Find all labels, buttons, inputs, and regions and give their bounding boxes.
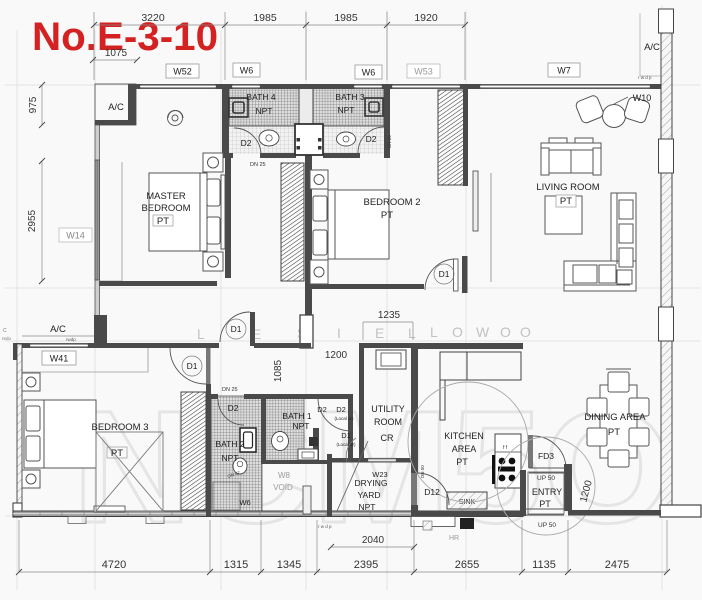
svg-text:r w d p: r w d p bbox=[318, 524, 332, 529]
svg-text:DINING AREA: DINING AREA bbox=[584, 412, 646, 423]
svg-text:DN 50: DN 50 bbox=[420, 465, 425, 478]
svg-text:4720: 4720 bbox=[102, 559, 126, 571]
svg-text:2040: 2040 bbox=[362, 535, 385, 546]
svg-text:NPT: NPT bbox=[222, 453, 239, 463]
svg-text:W53: W53 bbox=[414, 67, 433, 77]
svg-text:A/C: A/C bbox=[108, 102, 124, 113]
svg-text:UP 50: UP 50 bbox=[537, 475, 555, 482]
svg-text:D2: D2 bbox=[317, 405, 327, 414]
svg-text:LIVING ROOM: LIVING ROOM bbox=[536, 182, 599, 193]
svg-text:CR: CR bbox=[381, 433, 394, 443]
svg-text:3220: 3220 bbox=[141, 12, 165, 24]
svg-text:A/C: A/C bbox=[644, 42, 660, 53]
svg-text:2475: 2475 bbox=[605, 559, 629, 571]
svg-text:AREA: AREA bbox=[452, 444, 477, 454]
svg-text:W8: W8 bbox=[278, 471, 291, 480]
svg-text:NPT: NPT bbox=[293, 421, 310, 431]
svg-text:D2: D2 bbox=[241, 138, 252, 148]
svg-text:BATH 1: BATH 1 bbox=[282, 411, 311, 421]
svg-text:BEDROOM: BEDROOM bbox=[141, 203, 190, 214]
svg-text:f f: f f bbox=[503, 445, 508, 451]
svg-text:(Local dr): (Local dr) bbox=[336, 442, 356, 447]
svg-text:(Local dr): (Local dr) bbox=[334, 416, 354, 421]
svg-text:MASTER: MASTER bbox=[146, 191, 186, 202]
svg-text:D2: D2 bbox=[336, 405, 346, 414]
svg-text:W52: W52 bbox=[173, 67, 192, 77]
svg-text:D2: D2 bbox=[366, 134, 377, 144]
svg-text:1235: 1235 bbox=[378, 310, 401, 321]
svg-text:975: 975 bbox=[28, 96, 39, 113]
svg-text:D1: D1 bbox=[187, 361, 198, 371]
svg-text:HR: HR bbox=[449, 535, 459, 542]
svg-text:W: W bbox=[476, 324, 490, 340]
svg-text:NPT: NPT bbox=[256, 106, 273, 116]
svg-text:W6: W6 bbox=[362, 68, 376, 78]
svg-text:L: L bbox=[430, 324, 438, 340]
svg-text:1135: 1135 bbox=[532, 559, 556, 571]
svg-text:W6: W6 bbox=[239, 498, 250, 507]
svg-text:BEDROOM 2: BEDROOM 2 bbox=[363, 197, 420, 208]
svg-text:1985: 1985 bbox=[334, 12, 358, 24]
svg-text:C: C bbox=[3, 328, 7, 334]
svg-text:BATH 4: BATH 4 bbox=[246, 92, 275, 102]
svg-text:1345: 1345 bbox=[277, 559, 301, 571]
svg-text:PT: PT bbox=[381, 210, 393, 221]
svg-text:I: I bbox=[337, 325, 341, 341]
svg-text:BATH 2: BATH 2 bbox=[215, 439, 244, 449]
svg-text:VOID: VOID bbox=[273, 483, 293, 492]
svg-text:NPT: NPT bbox=[359, 502, 376, 512]
svg-text:1085: 1085 bbox=[273, 359, 284, 382]
svg-text:A/C: A/C bbox=[50, 324, 66, 335]
svg-text:L: L bbox=[197, 326, 205, 342]
svg-text:KITCHEN: KITCHEN bbox=[444, 431, 484, 441]
svg-text:1920: 1920 bbox=[414, 12, 438, 24]
svg-text:redo: redo bbox=[2, 336, 12, 341]
svg-text:NPT: NPT bbox=[338, 105, 355, 115]
svg-text:1315: 1315 bbox=[224, 559, 248, 571]
svg-text:L: L bbox=[408, 325, 416, 341]
svg-text:W10: W10 bbox=[633, 93, 652, 103]
svg-text:YARD: YARD bbox=[358, 490, 381, 500]
svg-text:1075: 1075 bbox=[105, 48, 128, 59]
svg-text:1200: 1200 bbox=[325, 350, 348, 361]
svg-text:E: E bbox=[375, 325, 384, 341]
svg-text:2655: 2655 bbox=[455, 559, 479, 571]
svg-text:D12: D12 bbox=[424, 487, 440, 497]
svg-text:W23: W23 bbox=[372, 470, 387, 479]
svg-text:PT: PT bbox=[456, 457, 468, 467]
svg-text:2395: 2395 bbox=[354, 559, 378, 571]
svg-text:r w d p: r w d p bbox=[638, 75, 652, 80]
svg-text:BEDROOM 3: BEDROOM 3 bbox=[91, 422, 148, 433]
svg-text:1985: 1985 bbox=[253, 12, 277, 24]
svg-text:D1: D1 bbox=[439, 269, 450, 279]
svg-text:SINK: SINK bbox=[459, 499, 476, 506]
svg-text:UP 50: UP 50 bbox=[538, 522, 556, 529]
svg-text:D2: D2 bbox=[228, 403, 239, 413]
svg-text:W41: W41 bbox=[50, 354, 69, 364]
svg-text:PT: PT bbox=[608, 427, 620, 438]
svg-text:W7: W7 bbox=[557, 66, 571, 76]
svg-text:W14: W14 bbox=[66, 231, 85, 241]
svg-text:PT: PT bbox=[560, 196, 572, 207]
svg-text:W6: W6 bbox=[240, 66, 254, 76]
svg-text:D1: D1 bbox=[231, 324, 242, 334]
svg-text:2955: 2955 bbox=[27, 209, 38, 232]
svg-text:BATH 3: BATH 3 bbox=[335, 92, 364, 102]
svg-text:DN 25: DN 25 bbox=[387, 135, 392, 148]
svg-text:PT: PT bbox=[539, 499, 551, 509]
svg-text:O: O bbox=[500, 324, 511, 340]
svg-text:DN 25: DN 25 bbox=[222, 387, 238, 393]
svg-text:D1: D1 bbox=[341, 431, 351, 440]
svg-text:ROOM: ROOM bbox=[374, 417, 402, 427]
svg-text:ENTRY: ENTRY bbox=[532, 487, 562, 497]
svg-text:UTILITY: UTILITY bbox=[371, 404, 405, 414]
svg-text:rwdp: rwdp bbox=[66, 337, 76, 342]
svg-text:O: O bbox=[452, 324, 463, 340]
svg-text:DRYING: DRYING bbox=[355, 478, 388, 488]
svg-text:PT: PT bbox=[157, 216, 169, 227]
svg-text:O: O bbox=[520, 324, 531, 340]
svg-text:FD3: FD3 bbox=[538, 451, 554, 461]
svg-text:PT: PT bbox=[111, 448, 123, 459]
svg-text:DN 25: DN 25 bbox=[250, 162, 266, 168]
